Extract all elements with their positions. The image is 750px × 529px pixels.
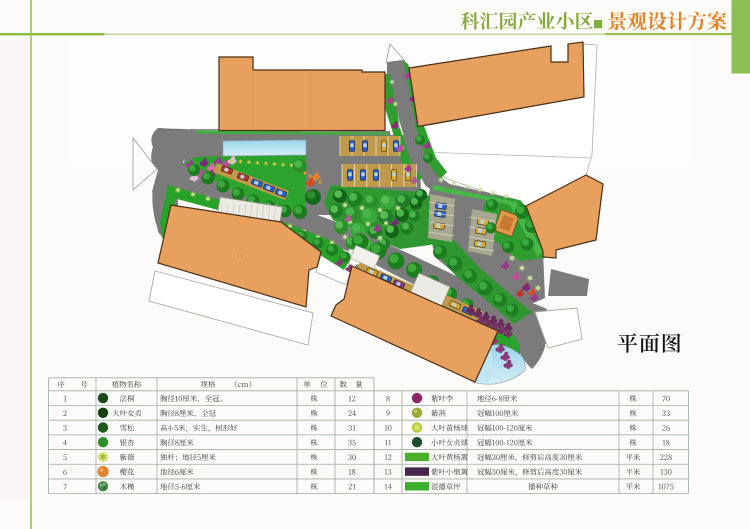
svg-text:’ ‘: ’ ‘ bbox=[238, 256, 242, 262]
